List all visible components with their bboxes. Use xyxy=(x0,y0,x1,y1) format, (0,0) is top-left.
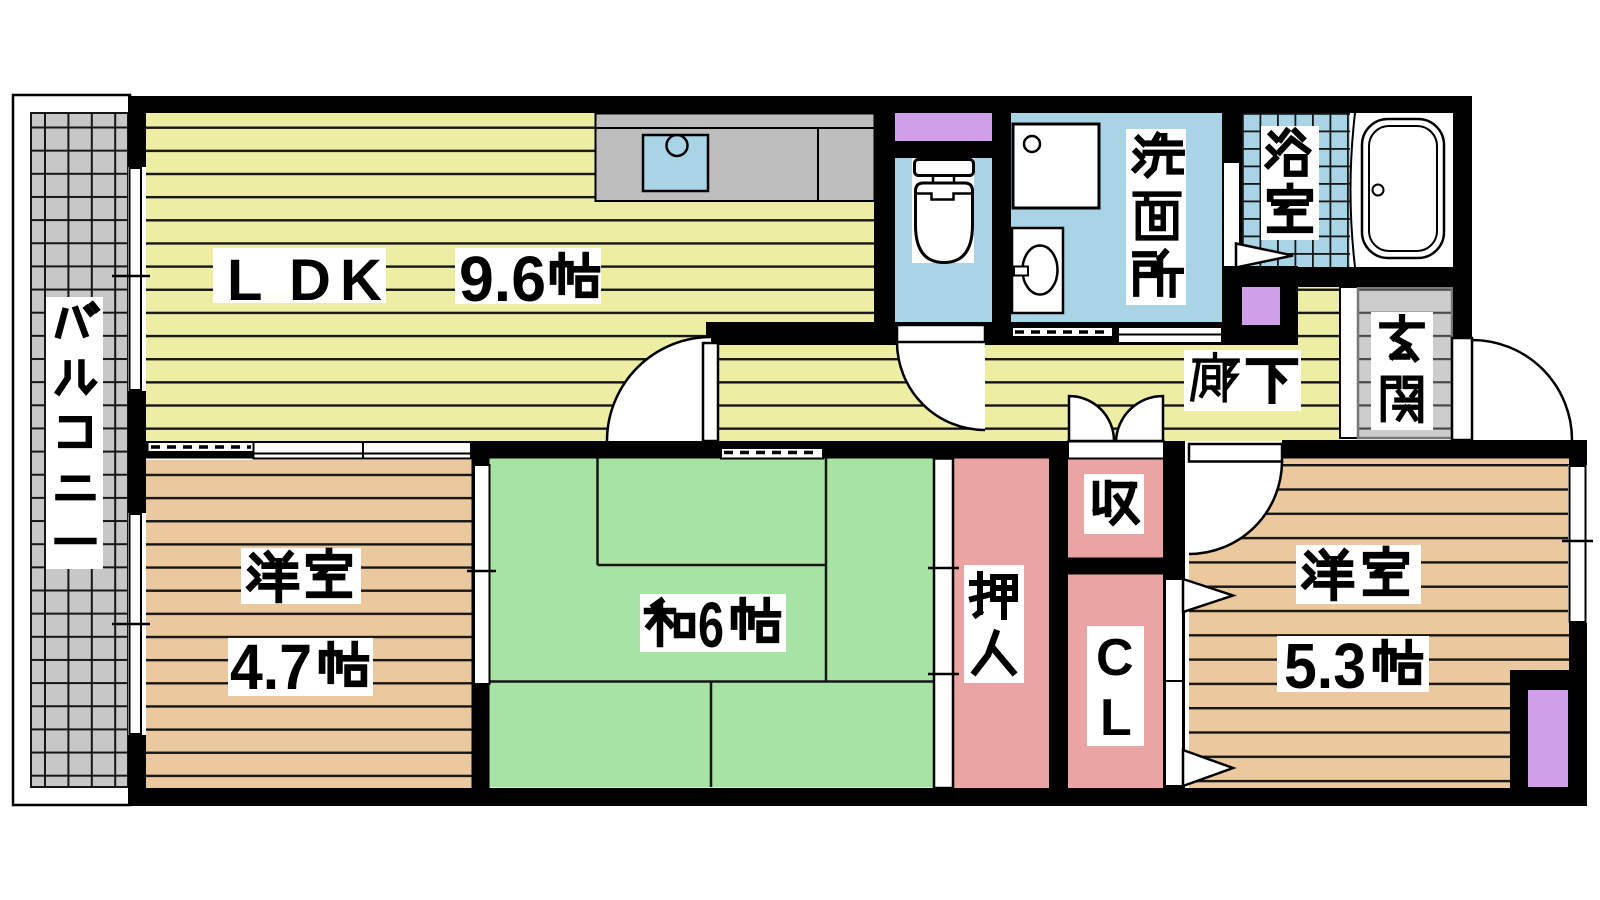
svg-text:9.6: 9.6 xyxy=(459,243,546,315)
svg-text:L: L xyxy=(227,248,262,313)
svg-text:4.7: 4.7 xyxy=(230,631,312,703)
svg-text:K: K xyxy=(340,248,382,313)
svg-text:C: C xyxy=(1096,629,1134,687)
svg-text:5.3: 5.3 xyxy=(1284,630,1366,702)
svg-text:D: D xyxy=(289,248,331,313)
svg-text:L: L xyxy=(1100,689,1132,747)
svg-text:6: 6 xyxy=(698,589,724,661)
